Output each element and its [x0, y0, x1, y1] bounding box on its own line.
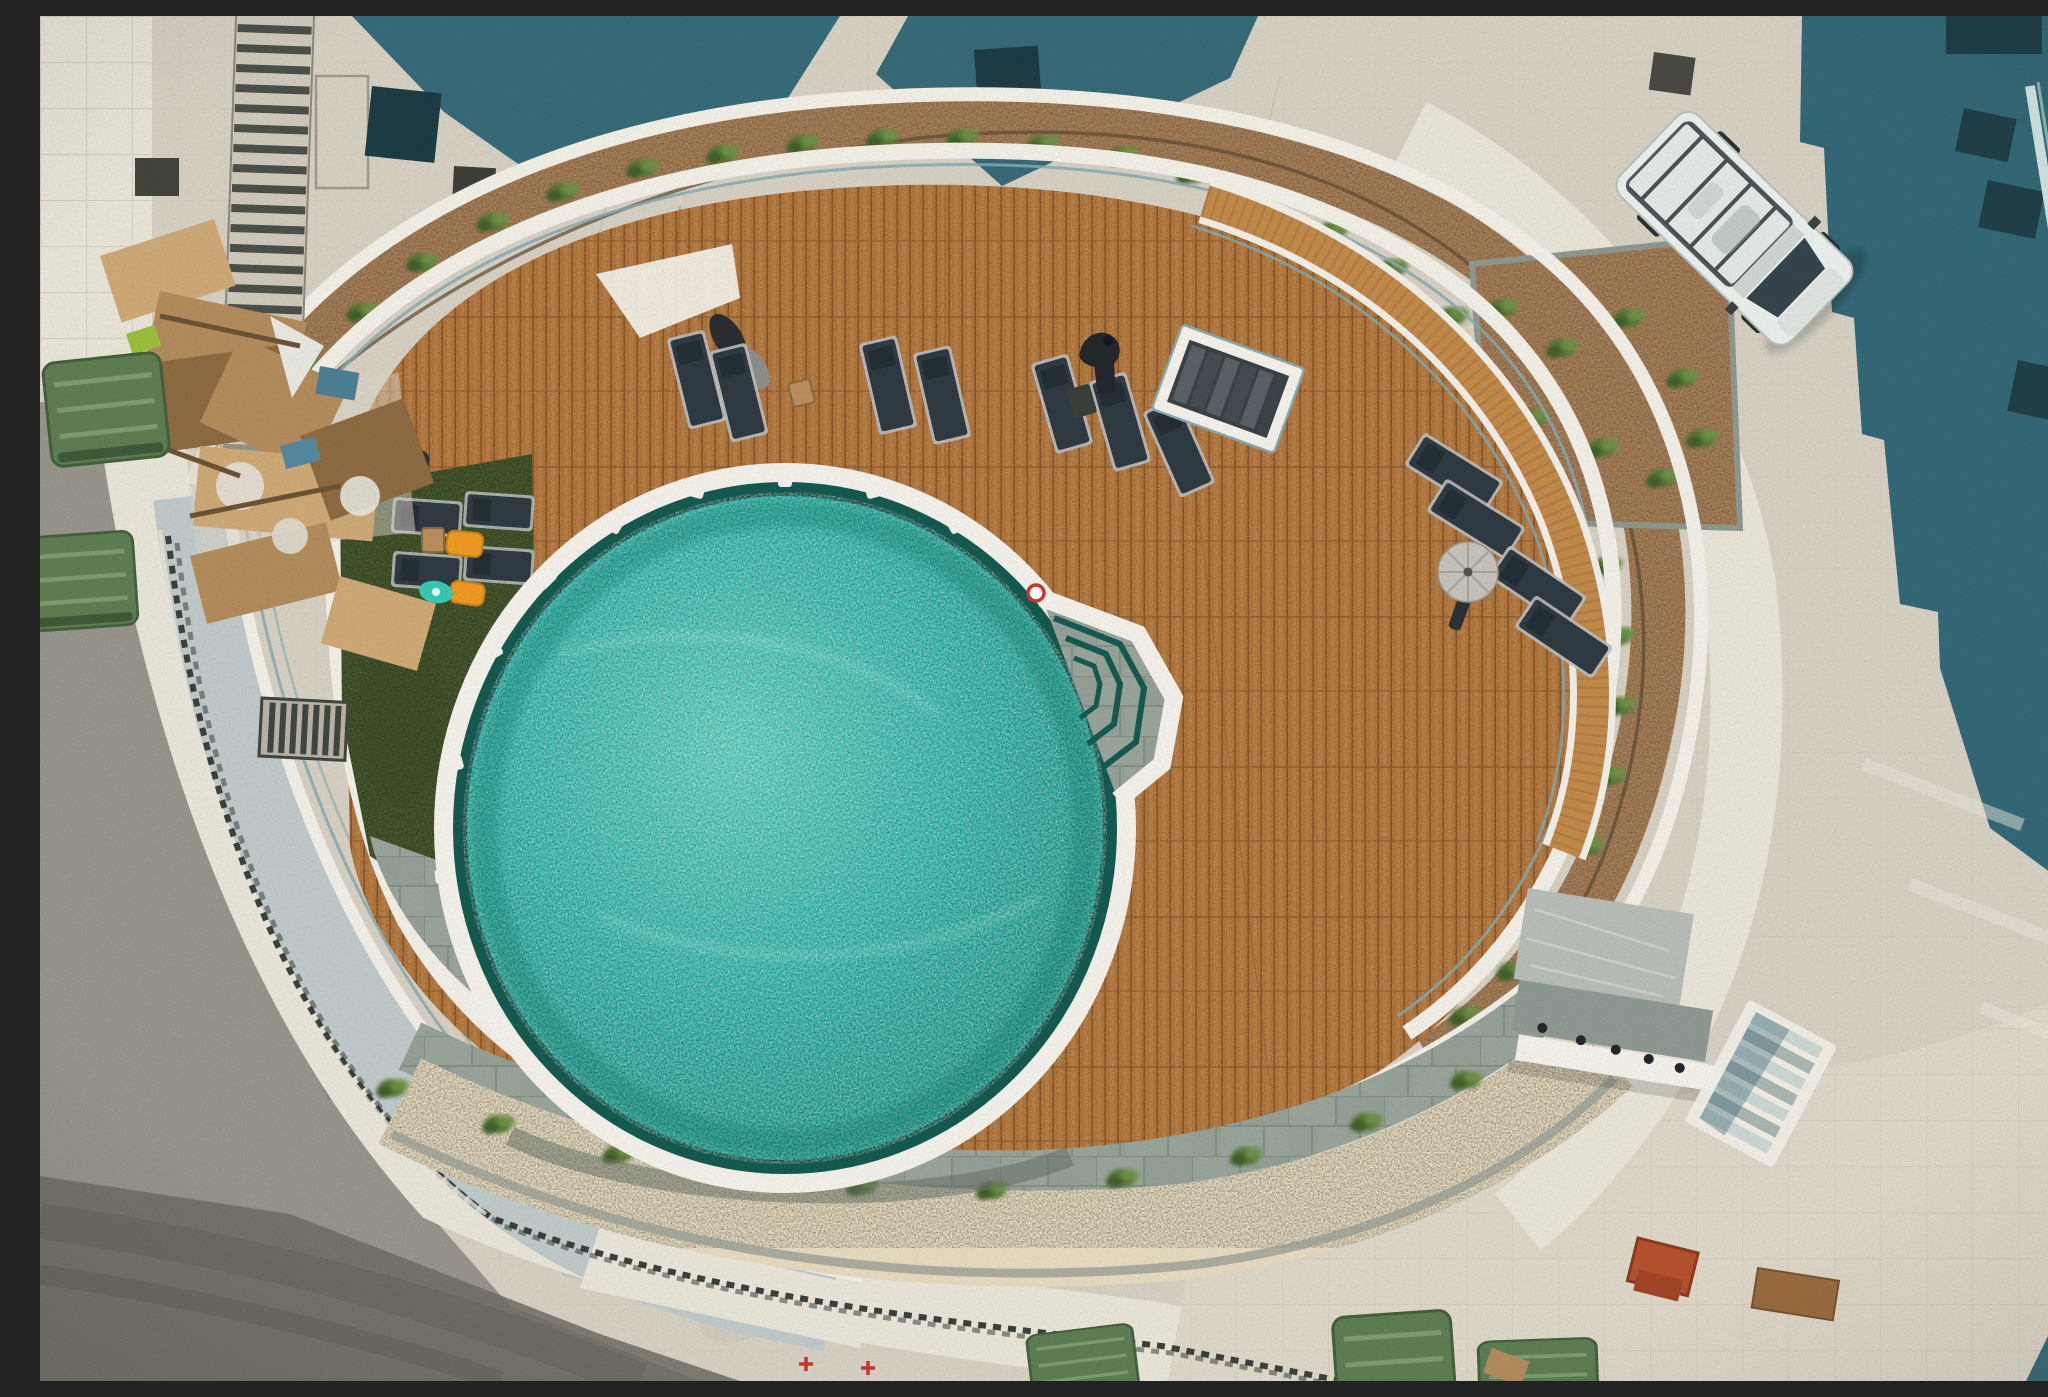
vignette [40, 16, 2048, 1381]
aerial-photo-pool-terrace [40, 16, 2048, 1381]
scene-canvas [40, 16, 2048, 1381]
